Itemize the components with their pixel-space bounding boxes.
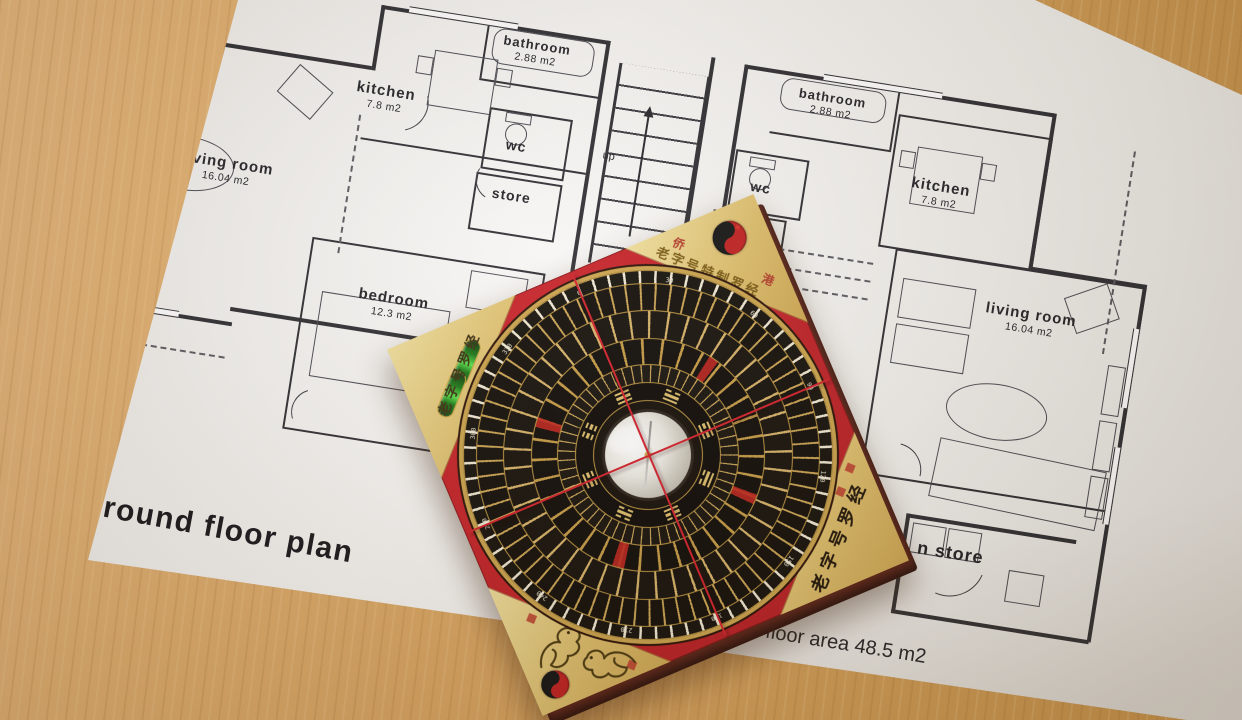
furniture-kitchen-table (427, 50, 499, 115)
wall-segment (360, 137, 586, 175)
furniture-radiator (1092, 420, 1118, 472)
furniture-sofa (65, 32, 167, 79)
furniture-shelf (944, 528, 982, 563)
window-symbol (23, 175, 41, 247)
door-arc (472, 155, 521, 204)
plan-title: ground floor plan (81, 487, 356, 570)
wall-segment (18, 289, 232, 327)
furniture-radiator (1084, 476, 1108, 520)
room-label-bathroom-left: bathroom 2.88 m2 (483, 30, 590, 74)
furniture-chair (494, 68, 513, 88)
wall-segment (891, 609, 1089, 644)
room-name: bathroom (485, 30, 590, 61)
room-name: living room (964, 296, 1099, 334)
wall-segment (906, 513, 1077, 544)
furniture-toilet (503, 122, 528, 147)
wall-segment (371, 5, 385, 71)
door-arc (283, 381, 346, 444)
room-label-store-left: store (479, 183, 545, 209)
stairs-arrow (628, 112, 650, 237)
room-name: wc (492, 134, 540, 157)
furniture-radiator (1100, 365, 1126, 417)
stairs-up-text: up (602, 149, 616, 163)
room-label-wc-right: wc (737, 176, 785, 199)
wall-segment (1087, 284, 1148, 642)
room-area: 2.88 m2 (778, 98, 883, 126)
wall-segment (889, 89, 901, 151)
room-name: kitchen (885, 170, 996, 204)
red-seal-mark (524, 611, 540, 627)
star-icon: ★ (733, 222, 743, 233)
room-area: 16.04 m2 (962, 314, 1096, 347)
window-symbol (409, 6, 519, 30)
furniture-toilet (747, 167, 772, 192)
furniture-sofa (890, 323, 969, 374)
room-area: 7.8 m2 (329, 92, 440, 121)
furniture-cistern (749, 156, 776, 170)
window-symbol (1102, 447, 1121, 525)
furniture-table (137, 129, 238, 197)
room-name: bathroom (780, 82, 885, 113)
furniture-chair (415, 55, 434, 75)
room-label-bathroom-right: bathroom 2.88 m2 (778, 82, 885, 126)
furniture-armchair (277, 64, 334, 120)
room-name: kitchen (331, 74, 442, 108)
photo-feng-shui-compass-on-floor-plan: living room 16.04 m2 kitchen 7.8 m2 bath… (0, 0, 1242, 720)
wall-segment (1028, 113, 1057, 270)
dashed-line (15, 323, 225, 358)
furniture-table (942, 376, 1052, 447)
window-symbol (1121, 328, 1140, 408)
room-label-wc-left: wc (492, 134, 540, 157)
room-name: living room (162, 145, 293, 182)
furniture-shelf (909, 522, 947, 557)
furniture-shelf (1004, 570, 1045, 607)
room-label-living-left: living room 16.04 m2 (160, 145, 293, 195)
furniture-armchair (1064, 283, 1120, 334)
wall-segment (1028, 266, 1145, 288)
window-symbol (40, 66, 58, 136)
yinyang-icon: ★ (707, 216, 752, 261)
room-label-kitchen-right: kitchen 7.8 m2 (883, 170, 996, 217)
furniture-sofa (47, 77, 92, 165)
furniture-cistern (505, 112, 532, 126)
dashed-line (1102, 151, 1136, 354)
room-name: store (479, 183, 545, 209)
room-name: bedroom (333, 281, 454, 317)
dashed-line (337, 115, 361, 254)
furniture-sofa (928, 437, 1107, 531)
furniture-sofa (897, 278, 976, 329)
wall-segment (18, 17, 66, 293)
room-area: 7.8 m2 (883, 188, 994, 217)
furniture-kitchen-table (909, 147, 983, 215)
stairs-label: up (588, 147, 629, 165)
wall-segment (479, 22, 490, 79)
room-label-bedroom: bedroom 12.3 m2 (331, 281, 454, 329)
wall-segment (769, 131, 891, 152)
door-arc (903, 514, 996, 607)
store-cubicle-wall (468, 172, 563, 243)
wall-segment (381, 5, 611, 45)
room-label-living-right: living room 16.04 m2 (962, 296, 1099, 347)
room-label-kitchen-left: kitchen 7.8 m2 (329, 74, 442, 121)
furniture-bathtub (490, 27, 596, 79)
wall-segment (61, 17, 372, 70)
wall-segment (479, 78, 600, 99)
room-label-store-bottom: n store (916, 537, 985, 568)
window-symbol (50, 291, 179, 318)
kitchen-wall (878, 114, 1053, 271)
wall-segment (744, 64, 1055, 117)
room-name: wc (737, 176, 785, 199)
room-area: 2.88 m2 (483, 45, 588, 73)
window-symbol (823, 74, 943, 100)
furniture-chair (899, 150, 916, 169)
furniture-bathtub (778, 77, 888, 125)
room-area: 12.3 m2 (331, 299, 451, 330)
furniture-chair (980, 163, 997, 182)
living-room-wall (860, 248, 1147, 513)
wc-cubicle-wall (480, 107, 573, 181)
door-arc (359, 62, 440, 143)
room-area: 16.04 m2 (160, 162, 290, 194)
